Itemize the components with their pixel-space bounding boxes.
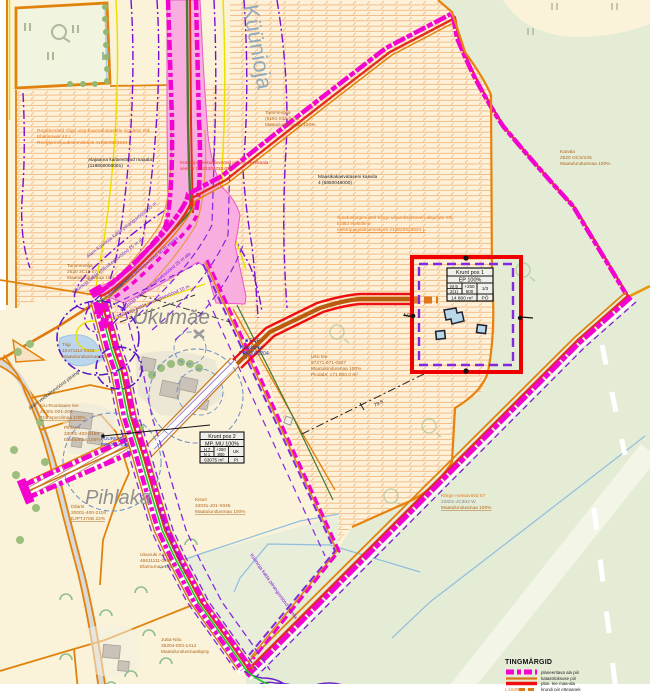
svg-text:Elamumaa 100%: Elamumaa 100% (140, 564, 177, 570)
svg-text:Maatulundusmaa 100%: Maatulundusmaa 100% (265, 122, 316, 128)
svg-text:23001-403-0184: 23001-403-0184 (64, 431, 100, 437)
svg-text:(118800000001): (118800000001) (88, 163, 123, 169)
svg-text:plan. tee maa-ala: plan. tee maa-ala (541, 681, 575, 686)
svg-text:(6191-043-0 G2: (6191-043-0 G2 (265, 116, 299, 122)
svg-text:Tammevälja: Tammevälja (265, 110, 291, 116)
svg-text:14 800 m²: 14 800 m² (451, 296, 473, 302)
svg-text:Pindala: 171 800.0 m²: Pindala: 171 800.0 m² (311, 372, 358, 378)
svg-text:Reeglpressuudistemiskusti 4108: Reeglpressuudistemiskusti 410820923634 (37, 140, 128, 146)
svg-text:4.0 m: 4.0 m (403, 313, 416, 319)
svg-text:TINGMÄRGID: TINGMÄRGID (505, 658, 552, 666)
svg-text:46611111-0406: 46611111-0406 (140, 558, 173, 564)
svg-text:57271-071-0527: 57271-071-0527 (311, 360, 347, 366)
svg-text:EP 100%: EP 100% (459, 278, 482, 284)
svg-text:PÕ: PÕ (482, 295, 489, 302)
svg-text:Maasikakasvataseni kasvila: Maasikakasvataseni kasvila (318, 174, 378, 180)
svg-text:Pihlaka: Pihlaka (85, 487, 151, 509)
svg-text:Maatulundusmaa 100%: Maatulundusmaa 100% (441, 505, 492, 511)
svg-text:Uku tee: Uku tee (311, 354, 328, 360)
svg-text:planeeritava ala piir: planeeritava ala piir (541, 670, 580, 675)
svg-text:Transpordimaa 100%: Transpordimaa 100% (40, 415, 86, 421)
svg-text:PRK0023204: PRK0023204 (239, 351, 269, 357)
svg-text:Maatulundusmaalüpüy: Maatulundusmaalüpüy (161, 649, 210, 655)
svg-text:Maatulundusmaa 10%: Maatulundusmaa 10% (62, 354, 110, 360)
svg-text:veelker (1021306733 02): veelker (1021306733 02) (180, 166, 232, 171)
svg-text:Kanala: Kanala (560, 149, 575, 155)
svg-text:500: 500 (466, 289, 474, 294)
svg-text:Kiu-Ruutsaare tee: Kiu-Ruutsaare tee (40, 403, 79, 409)
svg-text:Soodustingimustel kõrgu uisand: Soodustingimustel kõrgu uisandiselsoveri… (337, 215, 453, 221)
svg-text:Maatulundusmaa 100%: Maatulundusmaa 100% (311, 366, 362, 372)
svg-text:PRK0013145: PRK0013145 (101, 442, 129, 447)
svg-text:Alajaama kaitsevöönd maaala: Alajaama kaitsevöönd maaala (88, 157, 152, 163)
svg-text:■ EOF: ■ EOF (245, 338, 260, 344)
svg-text:22601-JC302 W: 22601-JC302 W (441, 499, 476, 505)
svg-text:Pihlasu: Pihlasu (64, 425, 80, 431)
svg-text:36204-003-1414: 36204-003-1414 (161, 643, 197, 649)
svg-text:Jutta-Nitu: Jutta-Nitu (161, 637, 182, 643)
svg-text:elektripaigaldisemiskorti 4108: elektripaigaldisemiskorti 410820923634 L (337, 227, 426, 233)
svg-text:Tiigi: Tiigi (62, 342, 71, 348)
svg-text:L krü09: L krü09 (505, 687, 520, 691)
svg-text:PUURKAEV: PUURKAEV (101, 436, 127, 441)
svg-text:UK: UK (233, 449, 239, 454)
svg-text:Elamumaa 100%: Elamumaa 100% (64, 437, 101, 443)
svg-text:Krunt pos 1: Krunt pos 1 (456, 270, 484, 276)
svg-text:24301-001-206: 24301-001-206 (40, 409, 73, 415)
svg-text:800: 800 (218, 452, 226, 457)
svg-text:Kisuri: Kisuri (195, 497, 207, 503)
svg-text:34031-J01-X045: 34031-J01-X045 (195, 503, 231, 509)
svg-text:Kõrge metsavööd 57: Kõrge metsavööd 57 (441, 493, 486, 499)
svg-text:Reguleeritud rõigu uisp kavend: Reguleeritud rõigu uisp kavendustastele … (37, 128, 151, 134)
svg-text:2520 3C10 07: 2520 3C10 07 (67, 269, 97, 275)
svg-text:2(1): 2(1) (450, 289, 459, 294)
svg-text:Tammevälja: Tammevälja (67, 263, 93, 269)
svg-text:63075 m²: 63075 m² (204, 458, 224, 463)
svg-text:krundi piir ettepanek: krundi piir ettepanek (541, 687, 581, 691)
svg-text:1/3: 1/3 (482, 286, 489, 291)
svg-text:Maatulundusmaa 100%: Maatulundusmaa 100% (195, 509, 246, 515)
svg-text:Maatulundusmaa 100%: Maatulundusmaa 100% (560, 161, 611, 167)
svg-text:20001-400-2104: 20001-400-2104 (71, 510, 107, 516)
svg-text:Ukunuki Aasu: Ukunuki Aasu (140, 552, 170, 558)
svg-text:4 (6360046000): 4 (6360046000) (318, 180, 352, 186)
svg-text:N 1: N 1 (204, 452, 211, 457)
svg-text:2520 OCS/245: 2520 OCS/245 (560, 155, 592, 161)
svg-text:EJPTJ7SB 22%: EJPTJ7SB 22% (71, 516, 106, 522)
svg-text:Küünioja veekaitsevöönd piiran: Küünioja veekaitsevöönd piirang veerikaa… (180, 160, 269, 165)
svg-text:Krunt pos 2: Krunt pos 2 (208, 434, 236, 440)
svg-text:Ukumäe: Ukumäe (133, 306, 210, 329)
svg-text:PI: PI (234, 458, 238, 463)
svg-text:Dilaris: Dilaris (71, 504, 85, 510)
svg-text:Ehitid elektriline: Ehitid elektriline (337, 221, 371, 227)
svg-text:10471111-0323: 10471111-0323 (62, 348, 95, 354)
svg-text:Ehitusmelv 43 L: Ehitusmelv 43 L (37, 134, 71, 140)
